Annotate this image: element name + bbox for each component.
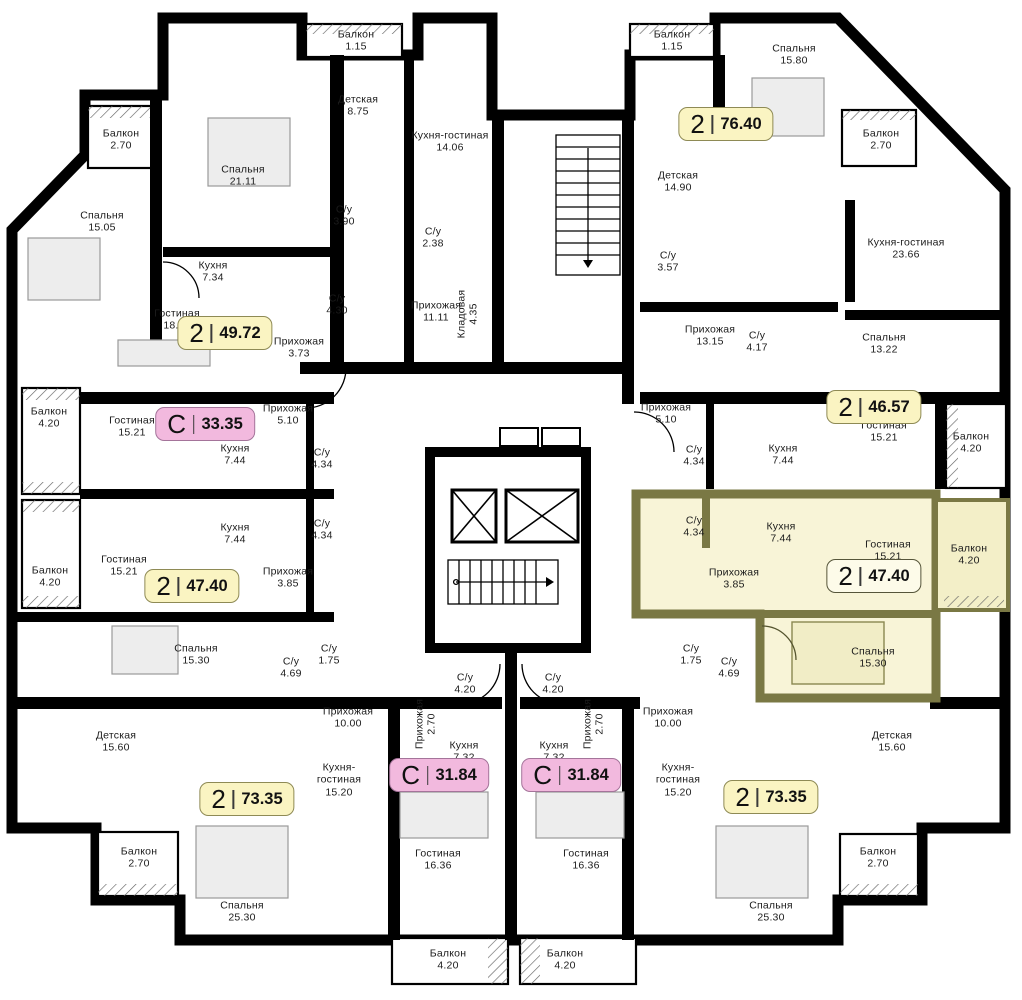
- room-label: Прихожая5.10: [263, 403, 313, 428]
- floor-plan-page: Балкон2.70 Спальня21.11 Спальня15.05 Кух…: [0, 0, 1022, 1000]
- room-label: Спальня15.30: [174, 643, 218, 668]
- apartment-badge[interactable]: 273.35: [199, 782, 294, 816]
- room-label: Прихожая10.00: [323, 706, 373, 731]
- room-label: Спальня15.80: [772, 43, 816, 68]
- room-label: Спальня15.30: [851, 646, 895, 671]
- room-label: Балкон4.20: [547, 948, 583, 973]
- room-label: Балкон1.15: [654, 29, 690, 54]
- room-label: Кухня-гостиная15.20: [310, 761, 368, 798]
- room-label: Балкон2.70: [860, 846, 896, 871]
- room-label: С/у4.34: [683, 444, 704, 469]
- room-label: Прихожая3.73: [274, 336, 324, 361]
- room-label: Спальня21.11: [221, 164, 265, 189]
- room-label: Кухня-гостиная15.20: [649, 761, 707, 798]
- room-label: С/у4.69: [718, 656, 739, 681]
- room-label: Прихожая10.00: [643, 706, 693, 731]
- room-label: Балкон4.20: [951, 543, 987, 568]
- apartment-badge[interactable]: С31.84: [521, 758, 621, 792]
- fire-stairs-icon: [556, 135, 620, 275]
- apartment-badge[interactable]: 273.35: [723, 780, 818, 814]
- room-label: Балкон2.70: [121, 846, 157, 871]
- room-label: Спальня25.30: [220, 900, 264, 925]
- room-label: Балкон4.20: [430, 948, 466, 973]
- apartment-badge-selected[interactable]: 247.40: [826, 559, 921, 593]
- room-label: Кухня7.44: [220, 522, 249, 547]
- room-label: Кладовая4.35: [456, 290, 481, 339]
- apartment-badge[interactable]: 246.57: [826, 390, 921, 424]
- room-label: С/у4.34: [683, 515, 704, 540]
- room-label: Детская14.90: [658, 170, 698, 195]
- apartment-badge[interactable]: С33.35: [155, 407, 255, 441]
- elevator-shaft-icon: [452, 490, 578, 542]
- room-label: Кухня-гостиная23.66: [867, 237, 944, 262]
- room-label: Детская8.75: [338, 94, 378, 119]
- room-label: Кухня7.44: [768, 443, 797, 468]
- room-label: С/у4.17: [746, 330, 767, 355]
- apartment-badge[interactable]: С31.84: [389, 758, 489, 792]
- room-label: Кухня7.44: [220, 443, 249, 468]
- room-label: С/у4.34: [311, 447, 332, 472]
- room-label: Балкон4.20: [953, 431, 989, 456]
- room-label: С/у1.75: [318, 643, 339, 668]
- room-label: Прихожая3.85: [709, 567, 759, 592]
- room-label: Прихожая2.70: [582, 699, 607, 749]
- room-label: С/у4.34: [311, 518, 332, 543]
- room-label: Кухня7.34: [198, 260, 227, 285]
- stairs-icon: [448, 560, 558, 604]
- room-label: Детская15.60: [96, 730, 136, 755]
- room-label: Кухня7.44: [766, 521, 795, 546]
- room-label: Гостиная15.21: [101, 554, 147, 579]
- room-label: Детская15.60: [872, 730, 912, 755]
- room-label: Прихожая13.15: [685, 324, 735, 349]
- room-label: Кухня-гостиная14.06: [411, 130, 488, 155]
- apartment-badge[interactable]: 247.40: [144, 569, 239, 603]
- room-label: С/у3.90: [333, 204, 354, 229]
- room-label: Балкон4.20: [32, 565, 68, 590]
- room-label: С/у4.30: [326, 293, 347, 318]
- room-label: Гостиная16.36: [415, 848, 461, 873]
- room-label: Гостиная16.36: [563, 848, 609, 873]
- room-label: Балкон1.15: [338, 29, 374, 54]
- room-label: Балкон4.20: [31, 406, 67, 431]
- room-label: С/у3.57: [657, 250, 678, 275]
- room-label: Гостиная15.21: [109, 415, 155, 440]
- room-label: Прихожая11.11: [411, 300, 461, 325]
- room-label: Спальня25.30: [749, 900, 793, 925]
- room-label: С/у4.20: [454, 672, 475, 697]
- room-label: С/у2.38: [422, 226, 443, 251]
- room-label: С/у1.75: [680, 643, 701, 668]
- room-label: Прихожая5.10: [641, 402, 691, 427]
- room-label: Балкон2.70: [863, 128, 899, 153]
- room-label: Прихожая3.85: [263, 566, 313, 591]
- apartment-badge[interactable]: 249.72: [177, 316, 272, 350]
- room-label: С/у4.69: [280, 656, 301, 681]
- room-label: С/у4.20: [542, 672, 563, 697]
- room-label: Спальня13.22: [862, 332, 906, 357]
- room-label: Балкон2.70: [103, 128, 139, 153]
- room-label: Спальня15.05: [80, 210, 124, 235]
- apartment-badge[interactable]: 276.40: [678, 107, 773, 141]
- room-label: Прихожая2.70: [414, 699, 439, 749]
